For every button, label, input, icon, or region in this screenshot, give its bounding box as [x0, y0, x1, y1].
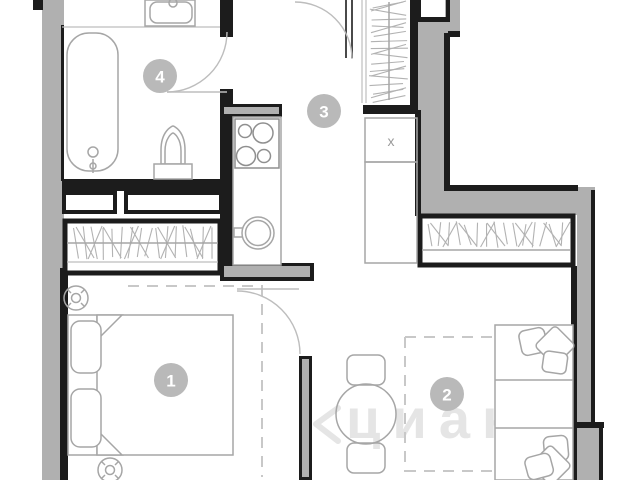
duct-box-1 [64, 193, 115, 212]
wall-below-closet [363, 105, 418, 114]
svg-text:3: 3 [319, 103, 328, 122]
wall-bathroom-bottom [62, 179, 229, 191]
svg-text:1: 1 [166, 372, 175, 391]
svg-text:2: 2 [442, 386, 451, 405]
wall-niche [421, 0, 445, 17]
sofa-pillow [542, 350, 569, 374]
svg-text:4: 4 [155, 68, 165, 87]
pillow [71, 321, 101, 373]
kitchen-sink [242, 217, 274, 249]
bathtub [67, 33, 118, 171]
toilet-cistern [154, 164, 192, 179]
floorplan: циан x [0, 0, 640, 480]
shaft-label: x [388, 133, 395, 149]
wall-closet-right [410, 0, 418, 112]
kitchen [233, 117, 281, 265]
floorplan-svg: циан x [0, 0, 640, 480]
pillow [71, 389, 101, 447]
duct-box-2 [126, 193, 221, 212]
wall-cap [33, 0, 43, 10]
wall-bathroom-right-top [220, 0, 233, 37]
